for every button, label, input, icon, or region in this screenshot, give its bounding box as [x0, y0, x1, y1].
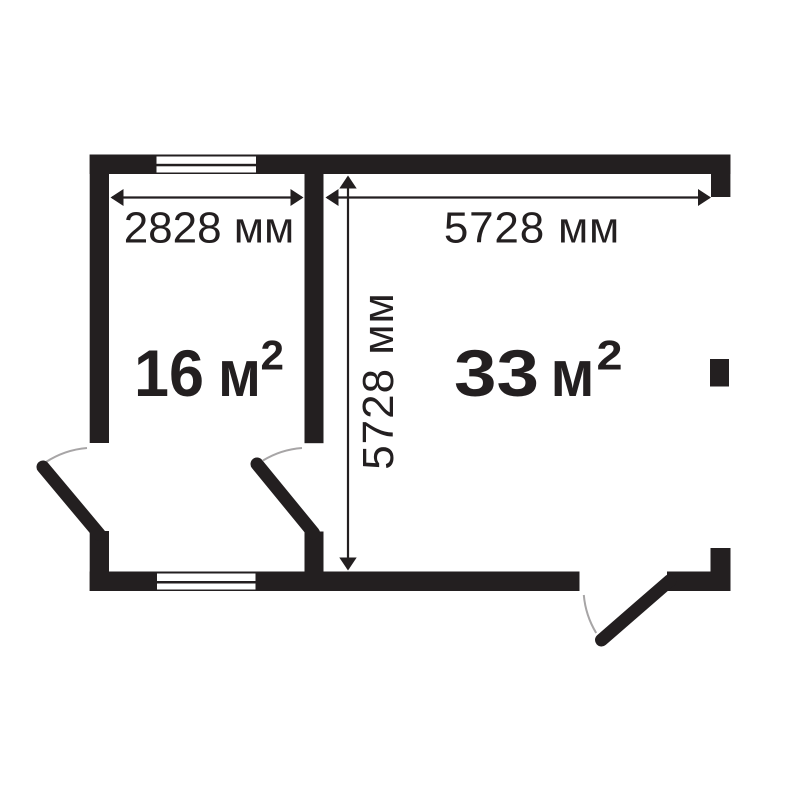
svg-text:м: м	[218, 336, 261, 410]
svg-text:2828 мм: 2828 мм	[124, 203, 295, 252]
svg-text:5728 мм: 5728 мм	[354, 292, 403, 470]
svg-text:м: м	[551, 336, 595, 410]
svg-text:33: 33	[454, 336, 539, 410]
svg-text:5728 мм: 5728 мм	[444, 203, 620, 252]
svg-text:2: 2	[597, 331, 623, 378]
svg-text:16: 16	[134, 336, 204, 410]
svg-text:2: 2	[261, 331, 285, 378]
